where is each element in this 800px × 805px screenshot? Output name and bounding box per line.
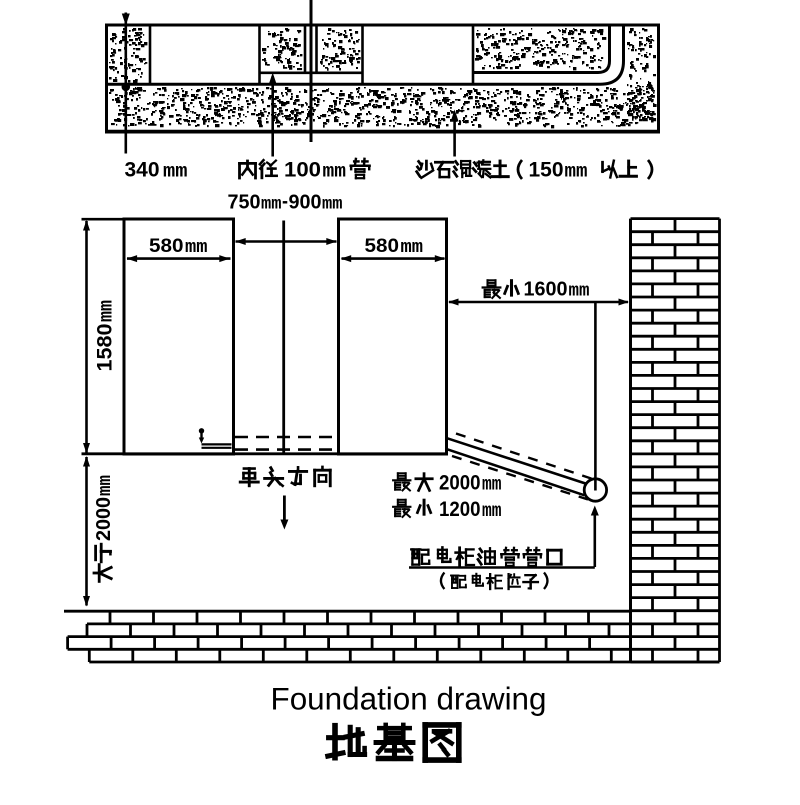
svg-text:Foundation drawing: Foundation drawing: [271, 681, 547, 717]
svg-text:2000: 2000: [439, 471, 481, 495]
svg-text:1580: 1580: [93, 323, 117, 371]
svg-text:mm: mm: [565, 161, 588, 183]
svg-text:340: 340: [125, 158, 160, 182]
svg-text:mm: mm: [323, 161, 347, 183]
svg-text:100: 100: [284, 158, 321, 182]
svg-text:mm: mm: [96, 300, 118, 322]
svg-text:mm: mm: [261, 195, 282, 215]
svg-text:750: 750: [228, 192, 261, 214]
svg-text:mm: mm: [322, 195, 343, 215]
svg-text:580: 580: [149, 235, 184, 257]
svg-text:mm: mm: [96, 475, 116, 496]
svg-text:1600: 1600: [524, 278, 568, 301]
svg-text:mm: mm: [185, 238, 208, 258]
svg-text:2000: 2000: [92, 497, 115, 541]
svg-text:mm: mm: [482, 500, 502, 522]
svg-text:580: 580: [365, 235, 400, 257]
svg-text:mm: mm: [482, 474, 502, 496]
svg-text:1200: 1200: [439, 497, 481, 521]
svg-text:mm: mm: [569, 282, 590, 302]
svg-text:-: -: [282, 191, 288, 213]
svg-text:900: 900: [289, 192, 322, 214]
svg-text:mm: mm: [163, 161, 188, 183]
svg-text:mm: mm: [401, 238, 424, 258]
svg-text:150: 150: [529, 158, 564, 182]
